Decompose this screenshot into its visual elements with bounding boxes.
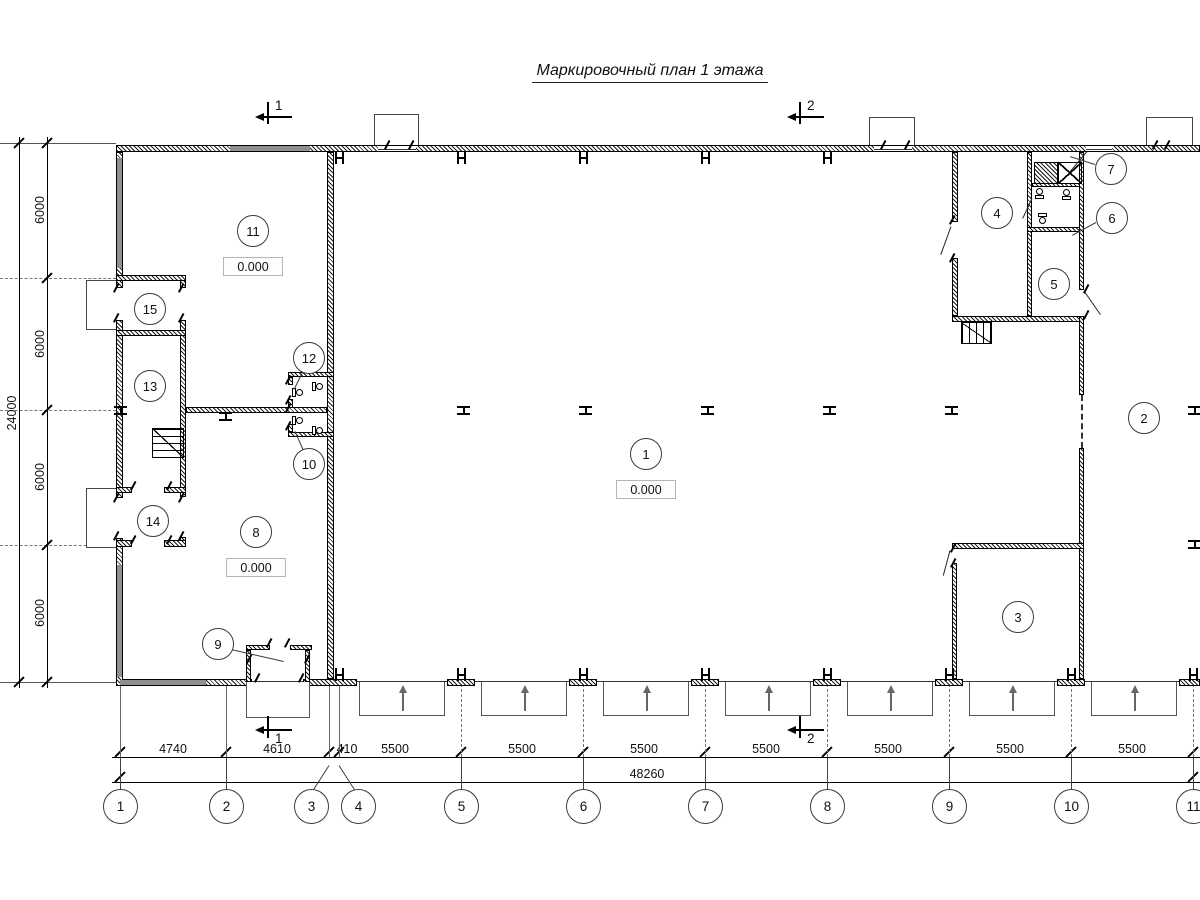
room-bubble-11: 11 [237, 215, 269, 247]
axis-stem [1071, 758, 1072, 789]
axis-bubble-6: 6 [566, 789, 601, 824]
elevation-mark: 0.000 [616, 480, 676, 499]
axis-bubble-9: 9 [932, 789, 967, 824]
shaft-solid-block [1034, 162, 1058, 184]
toilet-icon [312, 426, 325, 435]
section-mark-line [799, 716, 801, 738]
dock-arrow-icon [1012, 687, 1014, 711]
wall [952, 543, 1084, 549]
axis-bubble-8: 8 [810, 789, 845, 824]
left-dim-label: 6000 [33, 454, 47, 500]
room-bubble-5: 5 [1038, 268, 1070, 300]
elevation-mark: 0.000 [223, 257, 283, 276]
column-icon [1067, 668, 1076, 681]
left-dim-label: 6000 [33, 187, 47, 233]
left-dim-line-segments [47, 137, 48, 688]
column-icon [701, 151, 710, 164]
room-bubble-6: 6 [1096, 202, 1128, 234]
shaft-cross-icon [1058, 162, 1082, 184]
drawing-title: Маркировочный план 1 этажа [532, 62, 767, 83]
grid-dash-line [705, 684, 706, 757]
bottom-dim-label: 5500 [614, 742, 674, 756]
section-mark-line [263, 116, 292, 118]
wall [116, 275, 186, 281]
grid-dash-line [461, 684, 462, 757]
bottom-dim-total-label: 48260 [612, 767, 682, 781]
axis-elbow-leader [312, 765, 329, 791]
dock-arrow-icon [1134, 687, 1136, 711]
column-icon [823, 668, 832, 681]
grid-dash-line [1193, 684, 1194, 757]
wall-dashed-opening [1081, 395, 1083, 448]
room-bubble-15: 15 [134, 293, 166, 325]
bottom-dim-label: 5500 [365, 742, 425, 756]
room-bubble-10: 10 [293, 448, 325, 480]
axis-elbow-leader [339, 765, 356, 791]
bottom-dim-label: 4740 [143, 742, 203, 756]
grid-dash-line [583, 684, 584, 757]
dock-arrow-icon [890, 687, 892, 711]
wall [116, 330, 186, 336]
grid-dash-line [1071, 684, 1072, 757]
door-break-icon [130, 481, 136, 491]
porch-outline [86, 280, 116, 330]
row-grid-line [0, 278, 116, 279]
bottom-dim-label: 5500 [492, 742, 552, 756]
section-label-2-top: 2 [807, 98, 815, 113]
wall [1027, 227, 1084, 232]
toilet-icon [1038, 213, 1047, 226]
window-band [117, 158, 122, 268]
section-label-2-bottom: 2 [807, 731, 815, 746]
wall [186, 407, 327, 413]
door-line [1086, 149, 1112, 150]
column-icon [945, 668, 954, 681]
room-bubble-2: 2 [1128, 402, 1160, 434]
column-icon [1188, 406, 1200, 415]
dock-arrow-icon [768, 687, 770, 711]
room-bubble-8: 8 [240, 516, 272, 548]
column-icon [335, 668, 344, 681]
axis-bubble-7: 7 [688, 789, 723, 824]
column-icon [579, 151, 588, 164]
grid-extension-line [329, 686, 330, 757]
toilet-icon [292, 416, 305, 425]
door-leaf-line [943, 550, 951, 575]
dock-arrow-icon [402, 687, 404, 711]
axis-bubble-2: 2 [209, 789, 244, 824]
wall [327, 152, 334, 679]
wall [1027, 152, 1032, 316]
column-icon [219, 412, 232, 421]
bottom-dim-label: 5500 [980, 742, 1040, 756]
bottom-dim-line-segments [112, 757, 1200, 758]
bottom-dim-label: 5500 [736, 742, 796, 756]
room-bubble-3: 3 [1002, 601, 1034, 633]
dock-arrow-icon [646, 687, 648, 711]
dock-arrow-icon [524, 687, 526, 711]
wall [952, 563, 957, 679]
room-bubble-9: 9 [202, 628, 234, 660]
column-icon [457, 151, 466, 164]
section-mark-line [799, 102, 801, 124]
axis-bubble-3: 3 [294, 789, 329, 824]
bottom-dim-label: 5500 [858, 742, 918, 756]
porch-outline [86, 488, 116, 548]
stairs-icon [961, 322, 992, 344]
section-arrow-icon [255, 113, 264, 121]
elevation-mark: 0.000 [226, 558, 286, 577]
section-mark-line [267, 716, 269, 738]
leader-line [231, 649, 284, 662]
door-break-icon [178, 493, 184, 503]
axis-bubble-4: 4 [341, 789, 376, 824]
column-icon [114, 406, 127, 415]
column-icon [579, 668, 588, 681]
section-label-1-top: 1 [275, 98, 283, 113]
wall [1079, 448, 1084, 679]
column-icon [1189, 668, 1198, 681]
axis-stem [949, 758, 950, 789]
column-icon [945, 406, 958, 415]
left-dim-label: 6000 [33, 321, 47, 367]
axis-stem [1193, 758, 1194, 789]
room-bubble-14: 14 [137, 505, 169, 537]
axis-stem [583, 758, 584, 789]
axis-stem [827, 758, 828, 789]
window-band [230, 146, 310, 151]
column-icon [1188, 540, 1200, 549]
left-dim-total-label: 24000 [5, 390, 19, 436]
floor-plan-canvas: Маркировочный план 1 этажа 6000 6000 600… [0, 0, 1200, 900]
room-bubble-7: 7 [1095, 153, 1127, 185]
section-mark-line [267, 102, 269, 124]
room-bubble-12: 12 [293, 342, 325, 374]
grid-extension-line [226, 686, 227, 757]
bottom-dim-line-total [112, 782, 1200, 783]
section-arrow-icon [787, 726, 796, 734]
room-bubble-1: 1 [630, 438, 662, 470]
toilet-icon [312, 382, 325, 391]
column-icon [457, 406, 470, 415]
column-icon [823, 406, 836, 415]
window-band [117, 565, 122, 677]
dock-apron [246, 682, 310, 718]
axis-stem [120, 758, 121, 789]
grid-extension-line [120, 686, 121, 757]
wall [952, 258, 958, 316]
bottom-dim-label: 5500 [1102, 742, 1162, 756]
section-label-1-bottom: 1 [275, 731, 283, 746]
left-dim-label: 6000 [33, 590, 47, 636]
column-icon [457, 668, 466, 681]
toilet-icon [1035, 186, 1044, 199]
axis-stem [461, 758, 462, 789]
column-icon [701, 668, 710, 681]
bottom-dim-label: 410 [329, 742, 365, 756]
column-icon [701, 406, 714, 415]
grid-dash-line [949, 684, 950, 757]
axis-bubble-11: 11 [1176, 789, 1200, 824]
axis-bubble-1: 1 [103, 789, 138, 824]
left-dim-line-total [19, 137, 20, 688]
wall [303, 679, 357, 686]
door-leaf-line [940, 226, 951, 255]
axis-stem [705, 758, 706, 789]
column-icon [823, 151, 832, 164]
axis-bubble-10: 10 [1054, 789, 1089, 824]
section-mark-line [795, 116, 824, 118]
section-arrow-icon [255, 726, 264, 734]
drawing-title-wrap: Маркировочный план 1 этажа [450, 62, 850, 80]
section-arrow-icon [787, 113, 796, 121]
room-bubble-13: 13 [134, 370, 166, 402]
door-break-icon [1083, 310, 1089, 320]
grid-dash-line [827, 684, 828, 757]
room-bubble-4: 4 [981, 197, 1013, 229]
wall [952, 152, 958, 222]
wall [1079, 316, 1084, 395]
grid-extension-line [339, 686, 340, 757]
column-icon [579, 406, 592, 415]
stairs-icon [152, 428, 184, 458]
axis-stem [226, 758, 227, 789]
axis-bubble-5: 5 [444, 789, 479, 824]
column-icon [335, 151, 344, 164]
window-band [120, 680, 206, 685]
toilet-icon [1062, 187, 1071, 200]
door-break-icon [130, 535, 136, 545]
